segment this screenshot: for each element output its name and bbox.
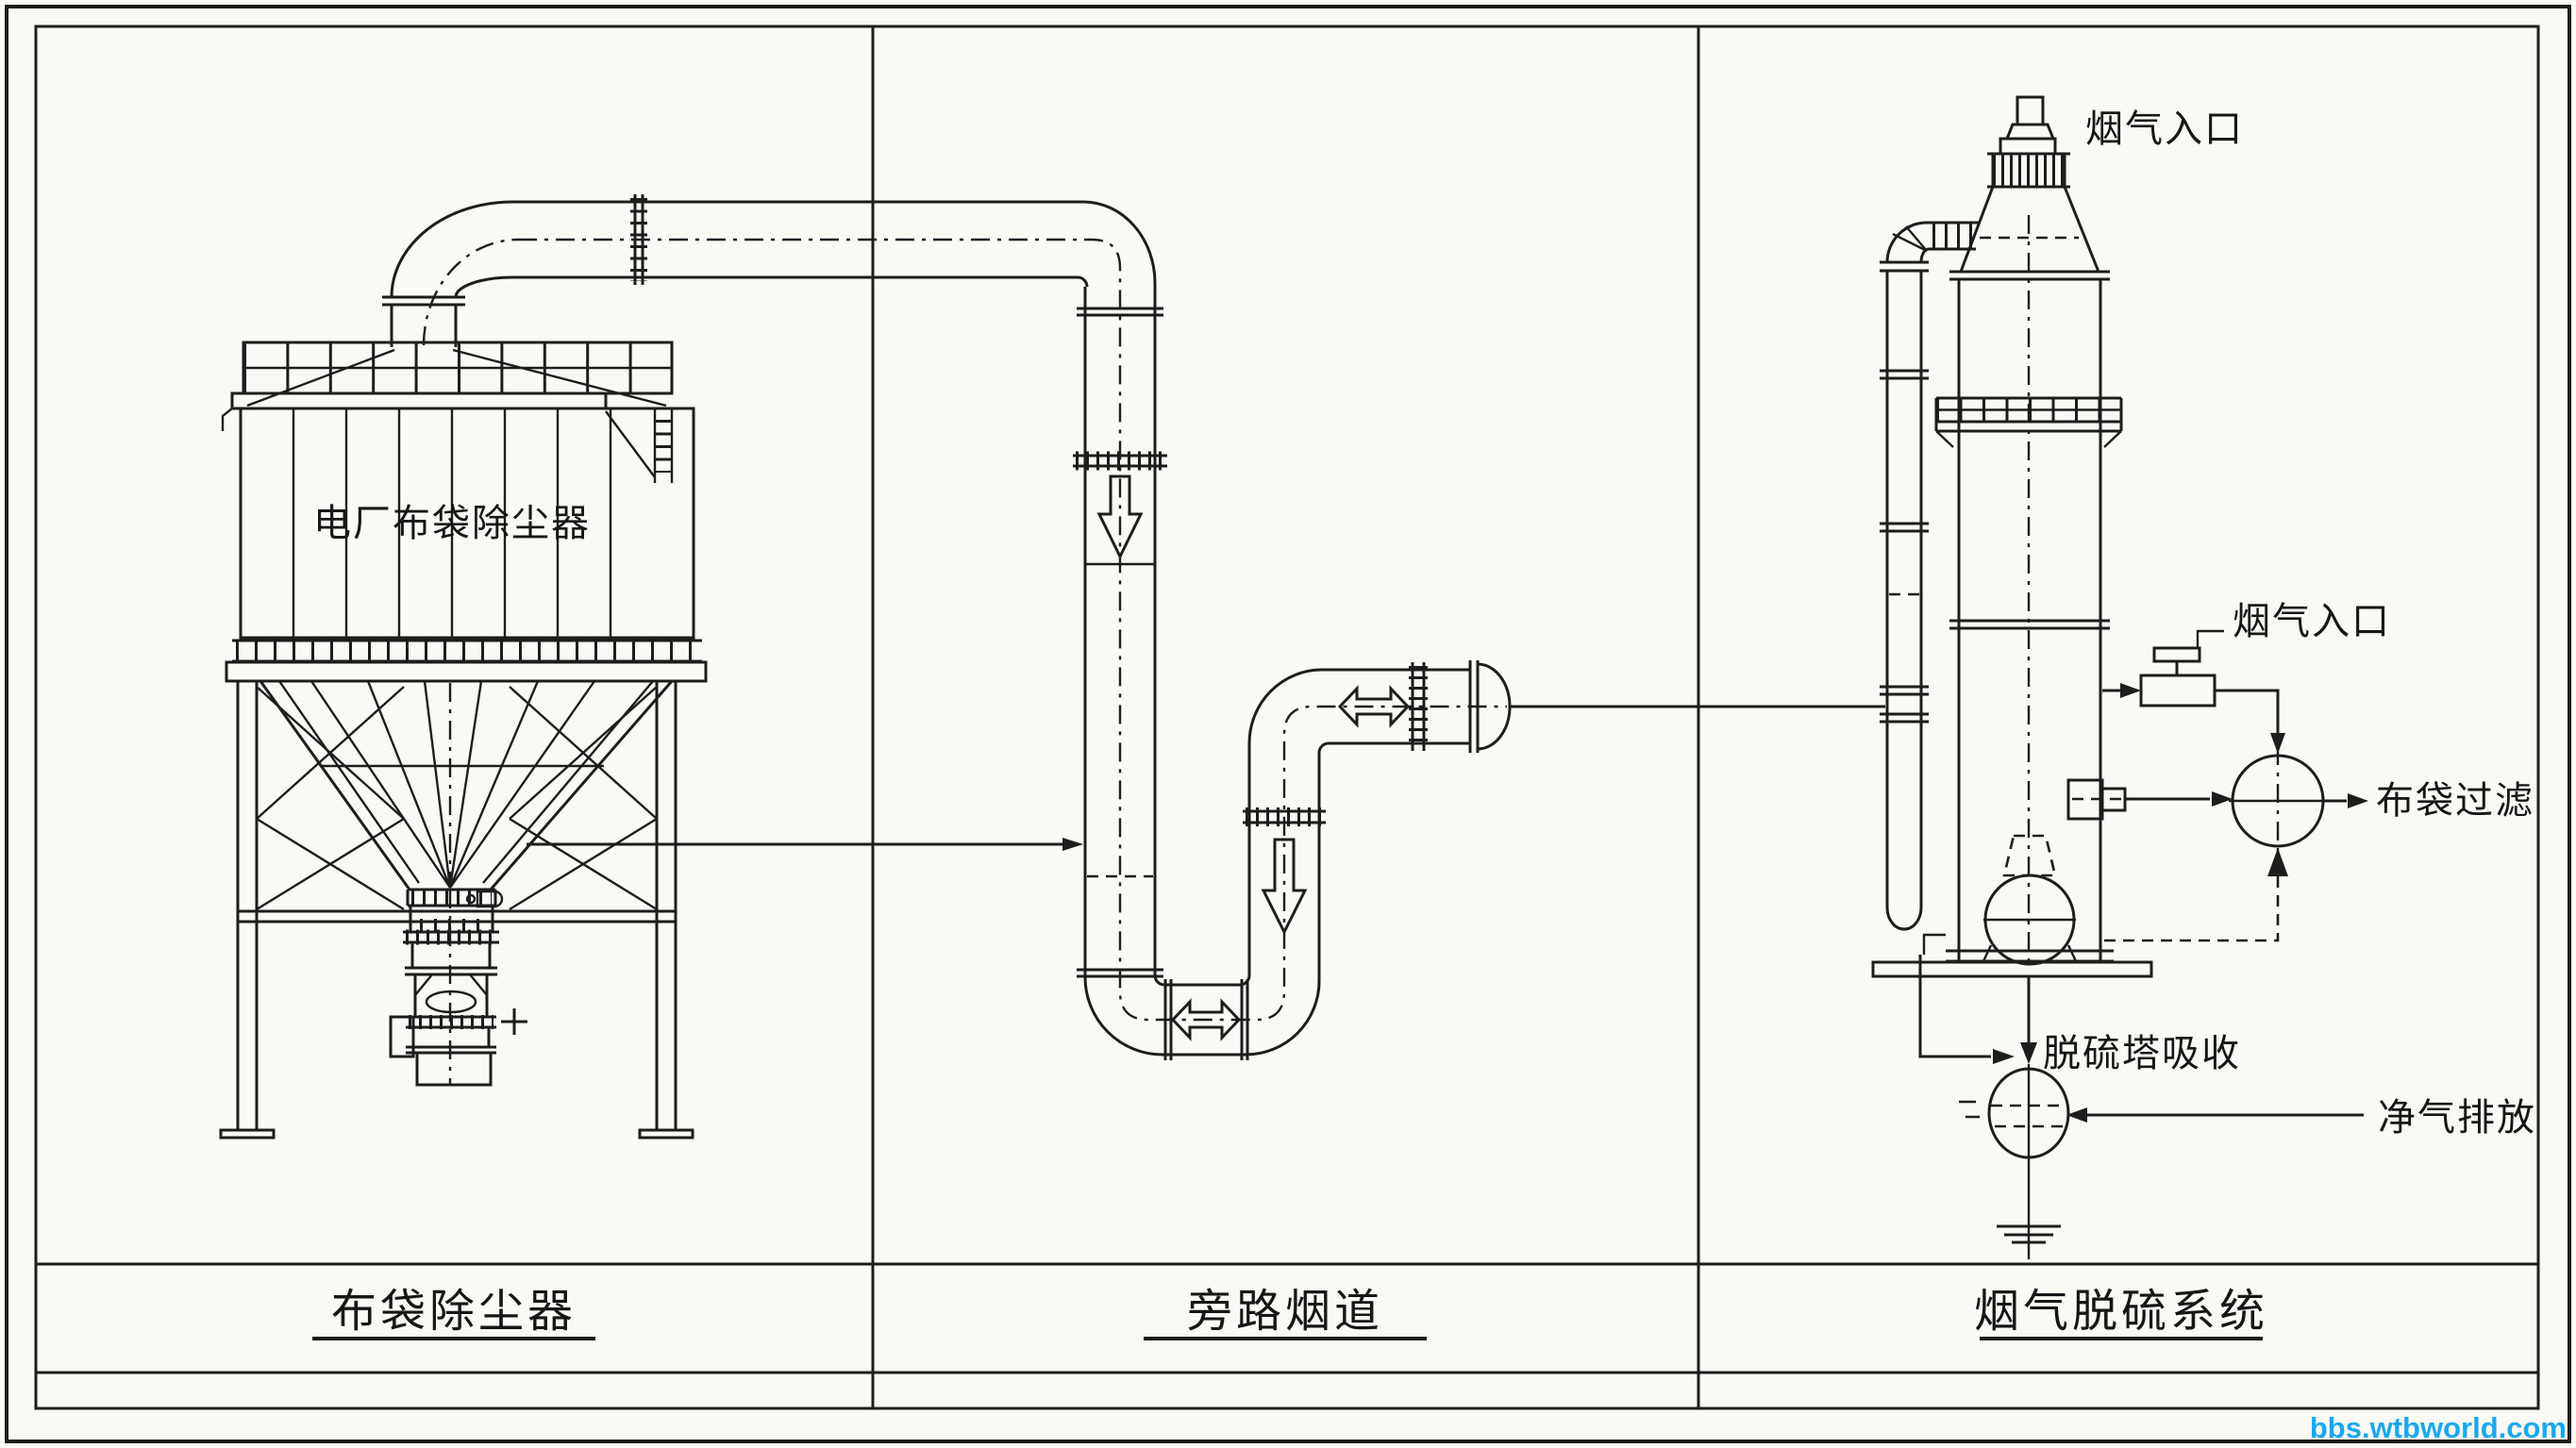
flow-schematic: 烟气入口 布袋过滤 脱硫塔吸收 净气排放 bbox=[1920, 600, 2536, 1259]
dust-discharge-valve bbox=[391, 890, 527, 1085]
section-title-bypass: 旁路烟道 bbox=[1187, 1287, 1383, 1337]
fgd-tower-drawing: 烟气入口 bbox=[1873, 97, 2244, 976]
bag-filter-node bbox=[2229, 746, 2327, 856]
section-titles: 布袋除尘器 旁路烟道 烟气脱硫系统 bbox=[331, 1287, 2268, 1337]
bypass-duct-drawing bbox=[424, 194, 1885, 1060]
right-arrowhead bbox=[2348, 793, 2368, 808]
inlet-damper-valve bbox=[2141, 631, 2224, 706]
tower-stack bbox=[2017, 97, 2043, 125]
right-arrowhead bbox=[2212, 791, 2233, 807]
bag-filter-label: 布袋过滤 bbox=[2376, 779, 2534, 822]
section-title-baghouse: 布袋除尘器 bbox=[331, 1287, 577, 1337]
up-arrowhead bbox=[2267, 848, 2288, 876]
drawing-frame bbox=[7, 7, 2569, 1441]
right-arrowhead bbox=[1993, 1049, 2015, 1064]
baghouse-drawing: 电厂布袋除尘器 bbox=[221, 202, 1083, 1138]
engineering-drawing-page: 电厂布袋除尘器 bbox=[0, 0, 2576, 1448]
down-arrowhead bbox=[2020, 1042, 2037, 1064]
absorber-node bbox=[1959, 1064, 2068, 1259]
absorber-label: 脱硫塔吸收 bbox=[2043, 1032, 2241, 1074]
clean-gas-label: 净气排放 bbox=[2378, 1096, 2536, 1139]
tower-top-inlet-label: 烟气入口 bbox=[2085, 108, 2244, 150]
right-arrowhead bbox=[2120, 683, 2141, 698]
section-title-fgd: 烟气脱硫系统 bbox=[1974, 1287, 2268, 1337]
right-flow-arrowhead bbox=[1062, 838, 1083, 851]
watermark-text: bbs.wtbworld.com bbox=[2310, 1411, 2567, 1444]
valve-inlet-label: 烟气入口 bbox=[2233, 600, 2391, 642]
baghouse-body-label: 电厂布袋除尘器 bbox=[313, 502, 591, 544]
